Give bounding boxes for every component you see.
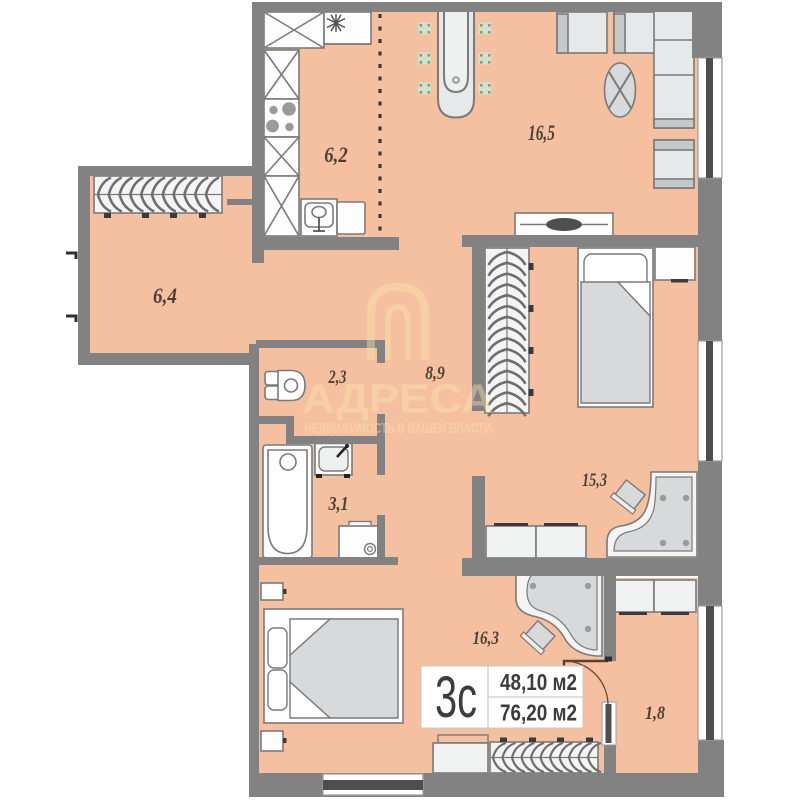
svg-text:16,5: 16,5	[528, 120, 555, 145]
svg-text:3,1: 3,1	[328, 493, 349, 515]
svg-text:15,3: 15,3	[582, 470, 607, 491]
svg-text:3с: 3с	[435, 665, 477, 730]
svg-text:76,20 м2: 76,20 м2	[500, 700, 577, 726]
svg-text:48,10 м2: 48,10 м2	[500, 669, 577, 695]
svg-text:1,8: 1,8	[645, 703, 665, 724]
svg-text:АДРЕСА: АДРЕСА	[302, 376, 494, 422]
svg-text:6,4: 6,4	[153, 283, 177, 308]
svg-text:16,3: 16,3	[472, 628, 499, 649]
svg-text:НЕДВИЖИМОСТЬ В ВАШЕЙ ВЛАСТИ: НЕДВИЖИМОСТЬ В ВАШЕЙ ВЛАСТИ	[305, 419, 492, 437]
svg-text:6,2: 6,2	[324, 142, 348, 167]
